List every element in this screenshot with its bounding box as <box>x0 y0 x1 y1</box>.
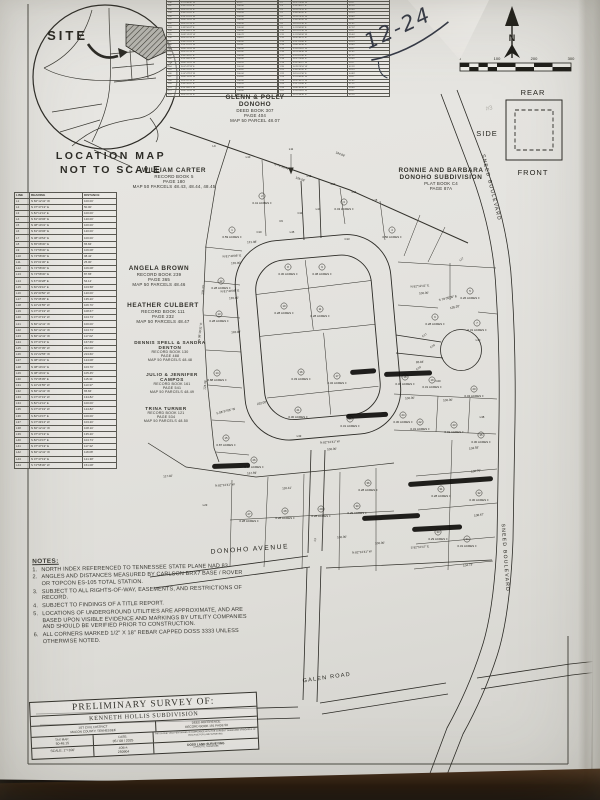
lot-label: 240.30 ACRES ± <box>393 412 413 424</box>
bearing-distance-label: N 82°12'41″ W <box>352 549 372 554</box>
note-number: 5. <box>33 611 42 631</box>
bearing-distance-label: L13 <box>331 182 336 186</box>
redaction-mark <box>362 513 420 521</box>
bearing-distance-label: 65.84' <box>416 360 425 365</box>
lot-number: 14 <box>216 371 219 375</box>
bearing-distance-label: C11 <box>298 211 303 215</box>
lot-number: 9 <box>321 265 323 269</box>
lot-acreage: 0.31 ACRES ± <box>444 430 464 434</box>
lot-acreage: 0.43 ACRES ± <box>334 207 354 211</box>
owner-label-julio-jennifer-campos: JULIO & JENNIFERCAMPOSRECORD BOOK 161PAG… <box>128 372 216 394</box>
note-number: 3. <box>33 589 42 602</box>
table-cell: 42.15' <box>348 93 390 97</box>
photo-of-survey-plat: SITE N 0100200300 REAR <box>0 0 600 800</box>
site-label: SITE <box>47 28 88 43</box>
lot-number: 27 <box>248 512 251 516</box>
lot-label: 110.28 ACRES ± <box>310 306 330 318</box>
lot-label: 30.43 ACRES ± <box>334 199 354 211</box>
lot-number: 22 <box>419 420 422 424</box>
table-cell: 151.08' <box>83 462 117 468</box>
owner-record-line: MAP 50 PARCELS 48.43, 48.44, 48.45 <box>95 184 253 189</box>
lot-acreage: 0.30 ACRES ± <box>393 420 413 424</box>
owner-label-heather-culbert: HEATHER CULBERTRECORD BOOK 111PAGE 232MA… <box>104 302 222 324</box>
cul-de-sac-stub <box>396 335 443 358</box>
bearing-distance-label: L12 <box>307 174 312 178</box>
owner-label-glenn-polly-donoho: GLENN & POLLYDONOHODEED BOOK 307PAGE 404… <box>196 94 314 123</box>
bearing-distance-label: N 81°40'06″ E <box>221 289 240 294</box>
bearing-distance-label: 108.67' <box>474 512 485 517</box>
lot-label: 360.28 ACRES ± <box>358 480 378 492</box>
bearing-distance-label: L3 <box>313 538 318 542</box>
southwest-boundary <box>148 443 394 477</box>
bearing-distance-label: 167.69' <box>247 471 257 476</box>
roads <box>36 90 598 790</box>
bearing-distance-label: 104.73' <box>463 562 474 567</box>
lot-number: 3 <box>343 200 345 204</box>
north-arrow-icon: N <box>504 6 520 58</box>
note-number: 4. <box>33 603 42 610</box>
owner-record-line: MAP 50 PARCEL 48.07 <box>196 118 314 123</box>
lot-label: 80.30 ACRES ± <box>278 264 298 276</box>
owner-label-angela-brown: ANGELA BROWNRECORD BOOK 239PAGE 365MAP 5… <box>103 265 215 287</box>
lot-acreage: 0.31 ACRES ± <box>410 427 430 431</box>
lot-number: 8 <box>287 265 289 269</box>
note-number: 1. <box>32 567 41 574</box>
lot-number: 15 <box>225 436 228 440</box>
lot-number: 36 <box>367 481 370 485</box>
lot-acreage: 0.29 ACRES ± <box>347 511 367 515</box>
bearing-distance-label: L45 <box>290 230 295 234</box>
lot-number: 2 <box>261 194 263 198</box>
lot-number: 20 <box>473 387 476 391</box>
bearing-distance-label: 121.38' <box>247 240 257 245</box>
bearing-distance-label: C20 <box>435 379 441 383</box>
lot-number: 34 <box>466 537 469 541</box>
owner-label-trina-turner: TRINA TURNERRECORD BOOK 121PAGE 534MAP 5… <box>126 406 206 423</box>
lot-number: 5 <box>469 289 471 293</box>
location-map: SITE <box>33 5 177 166</box>
lot-label: 220.31 ACRES ± <box>410 419 430 431</box>
lot-number: 33 <box>437 530 440 534</box>
redaction-mark <box>346 412 388 419</box>
bearing-distance-label: 118.08' <box>231 330 241 335</box>
lot-number: 35 <box>480 433 483 437</box>
bearing-distance-label: C10 <box>256 230 262 234</box>
owner-label-dennis-spell-sandra-denton: DENNIS SPELL & SANDRADENTONRECORD BOOK 1… <box>120 340 220 362</box>
owner-name: DONOHO SUBDIVISION <box>385 174 497 181</box>
bearing-distance-label: 184.86' <box>335 150 346 158</box>
lot-number: 21 <box>297 408 300 412</box>
owner-name: GLENN & POLLY <box>196 94 314 101</box>
lot-acreage: 0.28 ACRES ± <box>431 494 451 498</box>
lot-acreage: 0.30 ACRES ± <box>288 415 308 419</box>
site-arrow <box>88 44 118 58</box>
boundary-line-table: LINEBEARINGDISTANCE L1N 82°12'41″ W100.0… <box>14 192 117 469</box>
bearing-distance-label: L33 <box>297 434 302 438</box>
bearing-distance-label: 106.08' <box>295 176 306 183</box>
lot-label: 60.28 ACRES ± <box>425 314 445 326</box>
bearing-distance-label: N 74°58'30″ E <box>274 162 293 172</box>
lot-acreage: 0.31 ACRES ± <box>340 424 360 428</box>
bearing-distance-label: N 08°19'31″ E <box>197 322 203 341</box>
lot-acreage: 0.50 ACRES ± <box>382 235 402 239</box>
lot-label: 290.28 ACRES ± <box>311 506 331 518</box>
lot-acreage: 0.26 ACRES ± <box>460 296 480 300</box>
owner-record-line: MAP 50 PARCELS 48.47 <box>104 319 222 324</box>
setback-front-label: FRONT <box>518 168 549 177</box>
owner-record-line: MAP 50 PARCELS 48.48 <box>120 358 220 362</box>
bearing-distance-label: L38 <box>480 415 485 419</box>
lot-label: 320.30 ACRES ± <box>469 490 489 502</box>
line-table-continued: L45N 15°01'30″ W50.00'L46S 74°58'30″ W45… <box>166 0 278 97</box>
bearing-distance-label: C17 <box>421 332 428 338</box>
lot-number: 17 <box>336 374 339 378</box>
lot-label: 200.43 ACRES ± <box>464 386 484 398</box>
lot-number: 29 <box>320 507 323 511</box>
lot-acreage: 0.28 ACRES ± <box>275 516 295 520</box>
lot-number: 11 <box>319 307 322 311</box>
bearing-distance-label: N 81°40'06″ E <box>223 254 242 259</box>
lot-label: 270.28 ACRES ± <box>239 511 259 523</box>
lot-acreage: 0.59 ACRES ± <box>222 235 242 239</box>
lot-acreage: 0.33 ACRES ± <box>291 377 311 381</box>
bearing-distance-label: 116.41' <box>282 486 292 491</box>
bearing-distance-label: 117.02' <box>163 474 173 479</box>
owner-record-line: MAP 50 PARCELS 48.46 <box>103 282 215 287</box>
bearing-distance-label: L44 <box>316 207 321 211</box>
bearing-distance-label: C19 <box>415 365 422 371</box>
north-label: N <box>509 33 516 43</box>
bearing-distance-label: N 82°12'41″ W <box>320 439 340 444</box>
road-galen-road: GALEN ROAD <box>302 672 351 685</box>
lot-acreage: 0.28 ACRES ± <box>239 519 259 523</box>
lot-number: 1 <box>231 228 233 232</box>
note-text: LOCATIONS OF UNDERGROUND UTILITIES ARE A… <box>42 607 249 631</box>
lot-acreage: 0.87 ACRES ± <box>216 443 236 447</box>
lot-label: 70.31 ACRES ± <box>467 320 487 332</box>
bearing-distance-label: 100.00' <box>327 447 337 452</box>
bearing-distance-label: 120.00' <box>231 261 241 266</box>
owner-label-ronnie-barbara-donoho: RONNIE AND BARBARADONOHO SUBDIVISIONPLAT… <box>385 167 497 191</box>
lot-label: 340.31 ACRES ± <box>457 536 477 548</box>
bearing-distance-label: S 79°35'05″ E <box>438 294 457 302</box>
lot-number: 19 <box>431 378 434 382</box>
scale-tick-label: 100 <box>494 56 501 61</box>
lot-acreage: 0.43 ACRES ± <box>464 394 484 398</box>
note-number: 6. <box>34 632 43 645</box>
bearing-distance-label: S 82°10'47″ E <box>411 544 430 549</box>
bearing-distance-label: L9 <box>212 144 216 148</box>
lot-number: 6 <box>434 315 436 319</box>
setback-rear-label: REAR <box>521 88 546 97</box>
lot-number: 16 <box>300 370 303 374</box>
lot-label: 50.26 ACRES ± <box>460 288 480 300</box>
loop-road <box>232 231 405 444</box>
owner-label-william-carter: WILLIAM CARTERRECORD BOOK 5PAGE 180MAP 5… <box>95 167 253 189</box>
lot-number: 24 <box>402 413 405 417</box>
lot-label: 280.28 ACRES ± <box>275 508 295 520</box>
lots-layer: 10.59 ACRES ±20.41 ACRES ±30.43 ACRES ±4… <box>207 193 491 548</box>
note-item: 5.LOCATIONS OF UNDERGROUND UTILITIES ARE… <box>33 607 249 631</box>
lot-label: 300.29 ACRES ± <box>347 503 367 515</box>
owner-name: WILLIAM CARTER <box>95 167 253 174</box>
table-cell: L44 <box>15 462 30 468</box>
owner-record-line: PAGE 87A <box>385 186 497 191</box>
lot-acreage: 0.41 ACRES ± <box>252 201 272 205</box>
bearing-distance-label: 120.00' <box>229 296 239 301</box>
bearing-distance-label: 100.00' <box>375 541 385 546</box>
scale-value: SCALE: 1"=100' <box>33 747 92 754</box>
note-number: 2. <box>32 575 41 588</box>
scale-tick-label: 200 <box>531 56 538 61</box>
bearing-distance-label: L17 <box>458 256 464 262</box>
title-block: PRELIMINARY SURVEY OF: KENNETH HOLLIS SU… <box>29 692 259 760</box>
lot-acreage: 0.32 ACRES ± <box>395 382 415 386</box>
notes-block: NOTES: 1.NORTH INDEX REFERENCED TO TENNE… <box>32 554 250 646</box>
lot-label: 170.32 ACRES ± <box>327 373 347 385</box>
bearing-distance-label: 100.00' <box>405 396 415 401</box>
lot-number: 26 <box>253 458 256 462</box>
redactions-layer <box>212 368 493 532</box>
lot-acreage: 0.31 ACRES ± <box>457 544 477 548</box>
bearing-distance-label: L23 <box>203 503 208 507</box>
lot-label: 10.59 ACRES ± <box>222 227 242 239</box>
owner-name: DONOHO <box>196 101 314 108</box>
bearing-distance-label: 100.00' <box>337 535 347 540</box>
lot-label: 40.50 ACRES ± <box>382 227 402 239</box>
bearing-distance-label: N 82°12'41″ E <box>410 283 429 288</box>
bearing-distance-label: L30 <box>476 338 481 342</box>
redaction-mark <box>350 368 376 375</box>
road-interior-street <box>303 450 325 702</box>
lot-acreage: 0.30 ACRES ± <box>278 272 298 276</box>
table-cell: S 74°58'30″ W <box>30 462 83 468</box>
lot-acreage: 0.28 ACRES ± <box>311 514 331 518</box>
lot-acreage: 0.31 ACRES ± <box>467 328 487 332</box>
bearing-distance-label: 106.70' <box>471 468 482 473</box>
bearing-distance-label: L10 <box>246 155 251 159</box>
lot-label: 20.41 ACRES ± <box>252 193 272 205</box>
owner-name: HEATHER CULBERT <box>104 302 222 309</box>
paper-right-edge <box>578 0 600 780</box>
lot-acreage: 0.28 ACRES ± <box>310 314 330 318</box>
table-cell: L72 <box>167 93 180 97</box>
table-row: L44S 74°58'30″ W151.08' <box>15 462 117 468</box>
scale-tick-label: 300 <box>568 56 575 61</box>
bearing-distance-label: L15 <box>373 198 378 202</box>
lot-acreage: 0.31 ACRES ± <box>422 385 442 389</box>
owner-record-line: MAP 50 PARCELS 48.49 <box>128 390 216 394</box>
lot-acreage: 0.29 ACRES ± <box>428 537 448 541</box>
bearing-distance-label: C9 <box>279 219 283 223</box>
bearing-distance-label: 135.20' <box>450 304 461 310</box>
lot-label: 100.28 ACRES ± <box>274 303 294 315</box>
bearing-distance-label: 103.58' <box>469 445 480 450</box>
cul-de-sac <box>441 330 482 371</box>
lot-acreage: 0.30 ACRES ± <box>469 498 489 502</box>
lot-acreage: 0.32 ACRES ± <box>327 381 347 385</box>
redaction-mark <box>384 370 432 377</box>
bearing-distance-label: C13 <box>344 237 350 241</box>
bearing-distance-label: 232.00' <box>257 400 268 406</box>
bearing-distance-label: 100.00' <box>419 291 429 296</box>
scale-bar: 0100200300 <box>459 56 575 71</box>
owner-name: RONNIE AND BARBARA <box>385 167 497 174</box>
lot-acreage: 0.28 ACRES ± <box>274 311 294 315</box>
bearing-distance-label: L11 <box>289 147 294 151</box>
owner-record-line: MAP 50 PARCELS 48.50 <box>126 419 206 423</box>
lot-number: 7 <box>476 321 478 325</box>
lot-number: 31 <box>440 487 443 491</box>
road-sneed-boulevard-lower: SNEED BOULEVARD <box>500 524 511 593</box>
location-map-title: LOCATION MAP <box>36 150 186 162</box>
lot-acreage: 0.38 ACRES ± <box>312 272 332 276</box>
setback-side-label: SIDE <box>476 129 498 138</box>
lot-number: 28 <box>284 509 287 513</box>
lot-label: 310.28 ACRES ± <box>431 486 451 498</box>
lot-number: 4 <box>391 228 393 232</box>
bearing-distance-label: L14 <box>352 190 357 194</box>
lot-label: 150.87 ACRES ± <box>216 435 236 447</box>
setback-detail: REAR SIDE FRONT <box>476 88 562 177</box>
lot-label: 230.31 ACRES ± <box>444 422 464 434</box>
top-line-curve-tables: L45N 15°01'30″ W50.00'L46S 74°58'30″ W45… <box>166 0 390 97</box>
site-parcel-hatched <box>126 24 170 60</box>
bearing-distance-label: C18 <box>429 343 436 349</box>
lot-number: 30 <box>356 504 359 508</box>
lot-number: 10 <box>283 304 286 308</box>
lot-number: 23 <box>453 423 456 427</box>
bearing-distance-label: 100.00' <box>443 398 453 403</box>
lot-acreage: 0.28 ACRES ± <box>358 488 378 492</box>
lot-number: 12 <box>220 279 223 283</box>
lot-acreage: 0.30 ACRES ± <box>471 440 491 444</box>
lot-label: 90.38 ACRES ± <box>312 264 332 276</box>
lot-label: 210.30 ACRES ± <box>288 407 308 419</box>
lot-number: 32 <box>478 491 481 495</box>
lot-label: 160.33 ACRES ± <box>291 369 311 381</box>
lot-acreage: 0.28 ACRES ± <box>425 322 445 326</box>
owner-name: ANGELA BROWN <box>103 265 215 272</box>
bearing-distance-label: S 58°37'05″ W <box>216 407 236 416</box>
